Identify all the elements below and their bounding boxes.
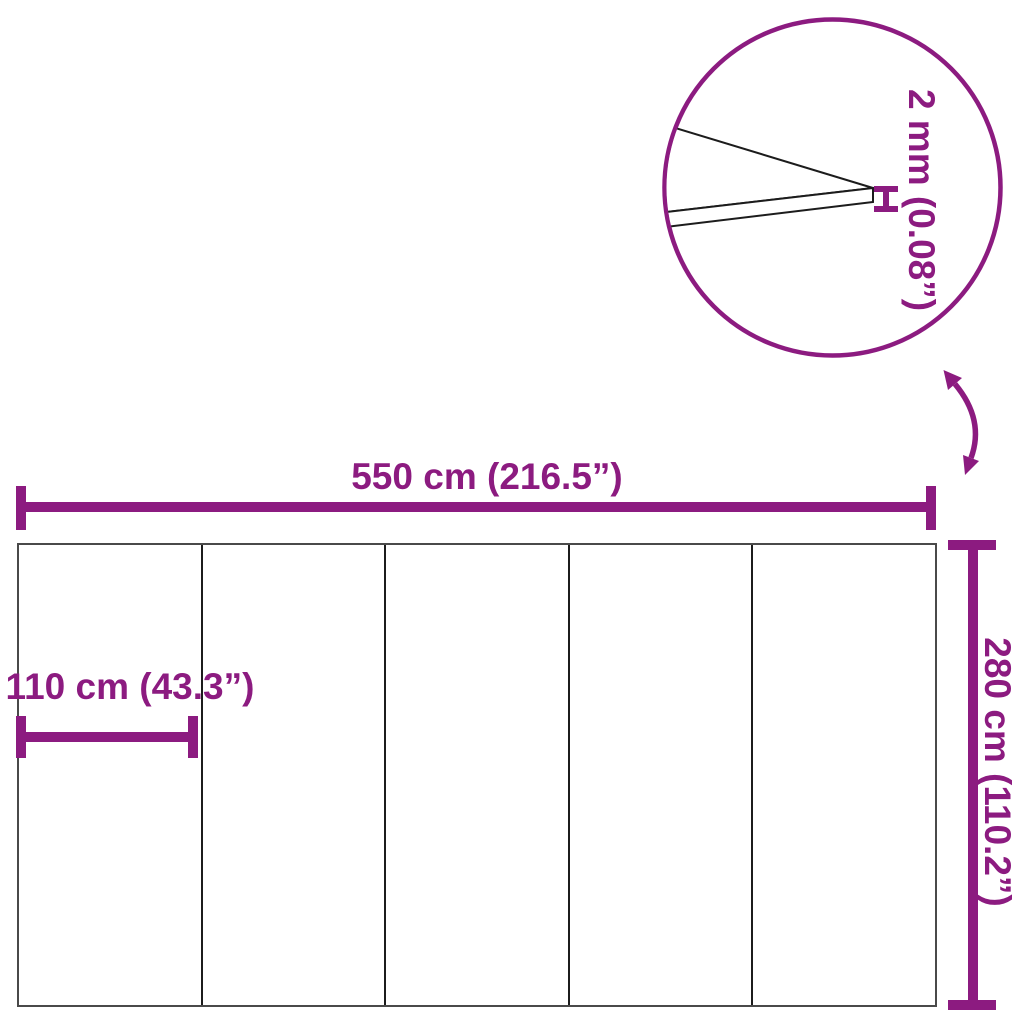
panel-width-dimension-label: 110 cm (43.3”) — [0, 667, 260, 707]
sheet-rectangle — [17, 543, 937, 1007]
panel-width-dimension-cap-left — [16, 716, 26, 758]
panel-width-dimension-cap-right — [188, 716, 198, 758]
panel-divider — [201, 545, 203, 1005]
diagram-canvas: 2 mm (0.08”) 550 cm (216.5”) 110 cm (43.… — [0, 0, 1024, 1024]
thickness-detail-circle — [655, 10, 1015, 370]
panel-divider — [751, 545, 753, 1005]
width-dimension-cap-left — [16, 486, 26, 530]
thickness-label: 2 mm (0.08”) — [897, 50, 941, 350]
panel-divider — [568, 545, 570, 1005]
width-dimension-label: 550 cm (216.5”) — [28, 457, 946, 497]
height-dimension-cap-bottom — [948, 1000, 996, 1010]
width-dimension-cap-right — [926, 486, 936, 530]
width-dimension-line — [17, 502, 935, 512]
height-dimension-cap-top — [948, 540, 996, 550]
height-dimension-label: 280 cm (110.2”) — [973, 602, 1017, 942]
panel-width-dimension-line — [17, 732, 198, 742]
panel-divider — [384, 545, 386, 1005]
